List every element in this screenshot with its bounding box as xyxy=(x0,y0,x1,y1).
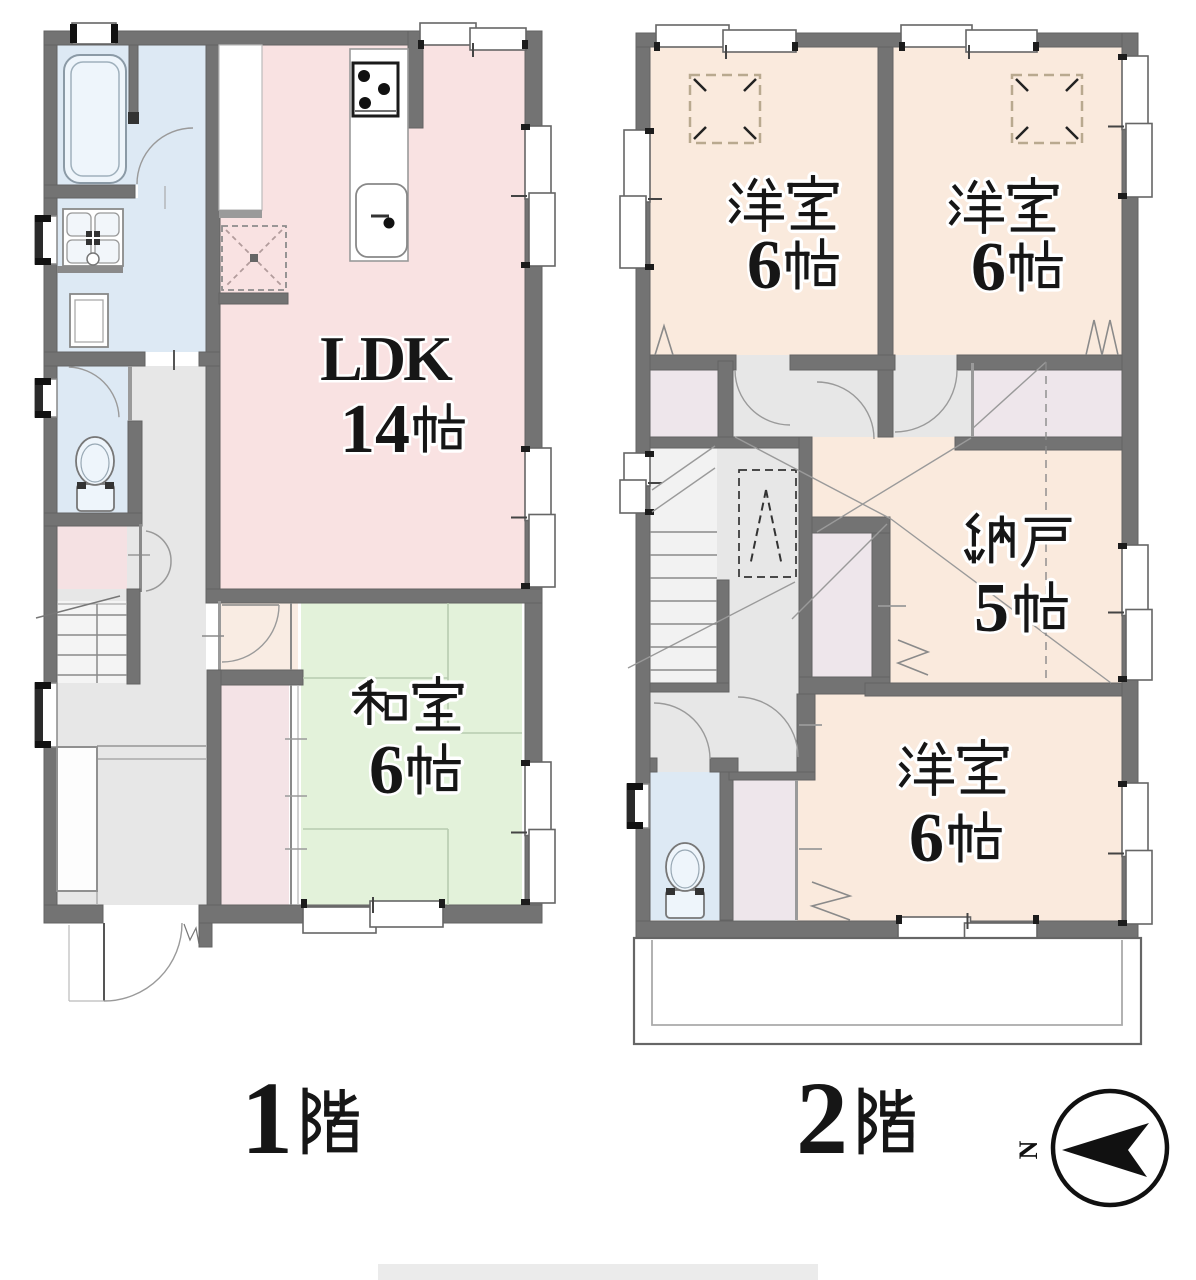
svg-text:N: N xyxy=(1014,1140,1043,1159)
svg-text:5: 5 xyxy=(974,570,1009,647)
svg-text:6: 6 xyxy=(971,229,1006,306)
svg-text:2: 2 xyxy=(796,1061,848,1176)
svg-text:6: 6 xyxy=(909,800,944,877)
svg-text:1: 1 xyxy=(241,1061,293,1176)
svg-text:6: 6 xyxy=(369,732,404,809)
svg-text:LDK: LDK xyxy=(320,323,453,394)
svg-text:6: 6 xyxy=(747,227,782,304)
svg-text:14: 14 xyxy=(340,391,410,468)
